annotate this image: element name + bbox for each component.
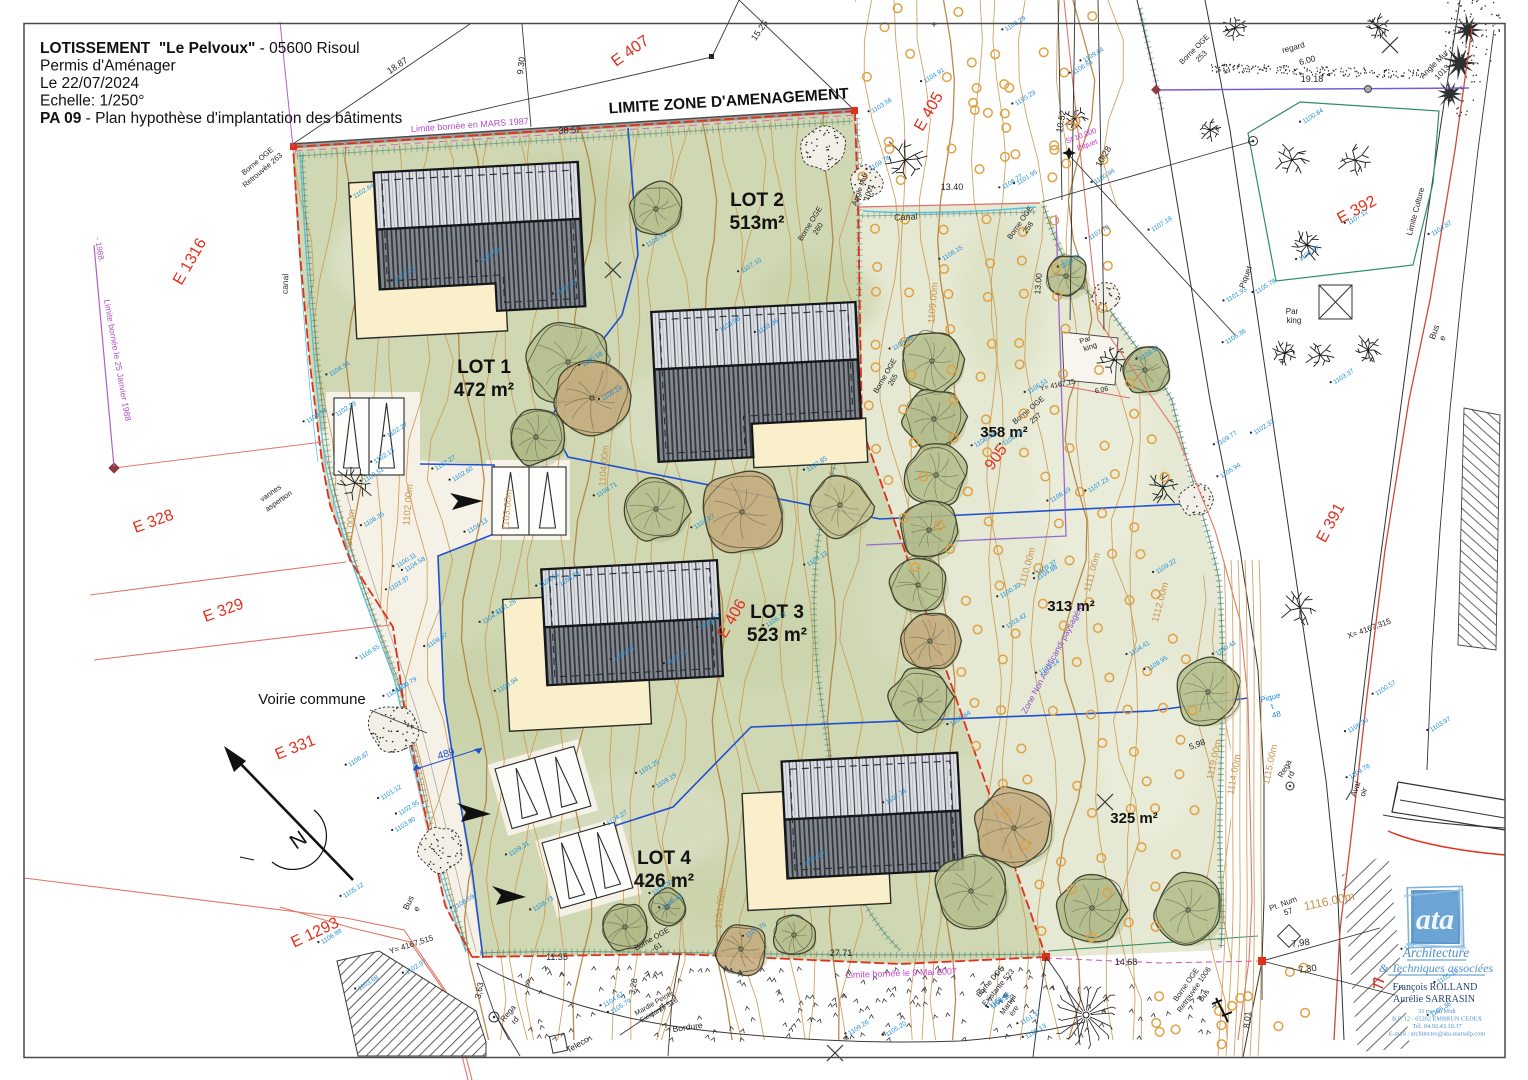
svg-text:Par: Par: [1286, 307, 1299, 316]
svg-text:8,01: 8,01: [1241, 1011, 1252, 1029]
svg-text:Permis d'Aménager: Permis d'Aménager: [40, 58, 176, 75]
svg-text:king: king: [1287, 316, 1302, 325]
svg-text:Architecture: Architecture: [1402, 945, 1469, 960]
svg-text:François ROLLAND: François ROLLAND: [1393, 982, 1478, 993]
svg-text:513m²: 513m²: [730, 213, 785, 234]
svg-text:Tél. 04.92.43.10.37: Tél. 04.92.43.10.37: [1412, 1023, 1461, 1030]
svg-text:31 rue du Midi: 31 rue du Midi: [1418, 1008, 1456, 1015]
svg-text:472 m²: 472 m²: [454, 380, 514, 401]
svg-text:E-mail : architectes@ata-marsa: E-mail : architectes@ata-marsalp.com: [1389, 1031, 1486, 1038]
svg-text:325 m²: 325 m²: [1110, 810, 1158, 827]
svg-text:B.P. 12 - 05202 EMBRUN CEDEX: B.P. 12 - 05202 EMBRUN CEDEX: [1392, 1016, 1483, 1023]
svg-text:PA 09 - Plan hypothèse d'impla: PA 09 - Plan hypothèse d'implantation de…: [40, 110, 403, 127]
svg-text:Aurélie SARRASIN: Aurélie SARRASIN: [1393, 994, 1475, 1005]
svg-text:& Techniques associées: & Techniques associées: [1379, 961, 1494, 975]
svg-text:LOT 2: LOT 2: [730, 190, 784, 211]
svg-text:Echelle: 1/250°: Echelle: 1/250°: [40, 93, 144, 110]
svg-text:13.00: 13.00: [1032, 272, 1044, 294]
svg-text:LOT 1: LOT 1: [457, 357, 511, 378]
svg-text:11.35: 11.35: [546, 952, 568, 962]
svg-text:Le 22/07/2024: Le 22/07/2024: [40, 75, 140, 92]
svg-text:Voirie commune: Voirie commune: [258, 691, 366, 708]
svg-text:+: +: [931, 20, 937, 31]
svg-text:523 m²: 523 m²: [747, 625, 807, 646]
svg-text:Canal: Canal: [894, 211, 918, 222]
svg-text:canal: canal: [280, 273, 291, 294]
svg-text:LOT 4: LOT 4: [637, 848, 691, 869]
svg-text:19.18: 19.18: [1301, 74, 1324, 84]
svg-text:9.30: 9.30: [515, 56, 527, 75]
svg-text:27.71: 27.71: [830, 948, 853, 958]
svg-text:13.40: 13.40: [941, 182, 964, 192]
svg-text:38.52: 38.52: [558, 124, 581, 135]
svg-text:ata: ata: [1416, 903, 1454, 936]
svg-text:14,68: 14,68: [1115, 957, 1138, 967]
svg-text:LOTISSEMENT "Le Pelvoux" - 05: LOTISSEMENT "Le Pelvoux" - 05600 Risoul: [40, 40, 360, 57]
